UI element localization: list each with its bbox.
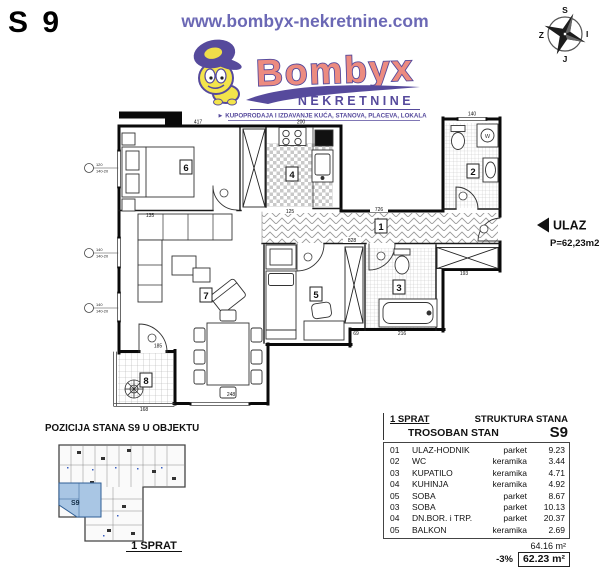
- armchair: [209, 278, 246, 314]
- svg-text:140-20: 140-20: [96, 169, 109, 174]
- room-area: 4.71: [527, 468, 565, 479]
- position-title: POZICIJA STANA S9 U OBJEKTU: [45, 423, 199, 434]
- net-area-value: 62.23 m²: [518, 552, 570, 567]
- brand-subtitle: NEKRETNINE: [298, 94, 414, 108]
- door-tag: [220, 189, 228, 197]
- table-row: 03 KUPATILO keramika 4.71: [384, 468, 569, 479]
- wall-block: [165, 112, 182, 126]
- room-name: WC: [412, 456, 475, 467]
- washer-label: W: [485, 134, 491, 140]
- closet-entry: [437, 248, 498, 269]
- dim-label: 125: [286, 209, 295, 215]
- compass-east: I: [586, 29, 588, 39]
- table-row: 05 SOBA parket 8.67: [384, 491, 569, 502]
- nightstand: [122, 199, 135, 211]
- dim-label: 828: [348, 238, 357, 244]
- svg-text:140: 140: [96, 247, 103, 252]
- window-tag: 140 140-20: [85, 247, 119, 259]
- table-subheader: TROSOBAN STAN S9: [383, 425, 570, 440]
- table-row: 01 ULAZ-HODNIK parket 9.23: [384, 445, 569, 456]
- door-tag: [377, 252, 385, 260]
- room-number: 03: [390, 468, 412, 479]
- table-row: 04 KUHINJA keramika 4.92: [384, 479, 569, 490]
- net-area-row: -3% 62.23 m²: [383, 551, 570, 567]
- entrance-arrow-icon: [537, 218, 549, 233]
- svg-text:4: 4: [289, 170, 295, 181]
- unit-code-label: S 9: [8, 6, 62, 39]
- coffee-table: [172, 256, 196, 275]
- room-area: 20.37: [527, 513, 565, 524]
- room-material: parket: [475, 491, 527, 502]
- dim-label: 140: [468, 112, 477, 118]
- apartment-structure-table: 1 SPRAT STRUKTURA STANA TROSOBAN STAN S9…: [383, 413, 570, 567]
- svg-text:8: 8: [143, 376, 148, 387]
- svg-text:1: 1: [378, 222, 384, 233]
- room-label-8: 8: [140, 373, 152, 387]
- room-name: KUHINJA: [412, 479, 475, 490]
- website-url[interactable]: www.bombyx-nekretnine.com: [180, 11, 428, 31]
- wall-block: [119, 112, 165, 119]
- room-area: 4.92: [527, 479, 565, 490]
- door-tag: [148, 334, 156, 342]
- room-number: 04: [390, 513, 412, 524]
- compass-south: J: [563, 54, 568, 64]
- closet-bedroom: [345, 247, 363, 323]
- room-label-3: 3: [393, 280, 405, 294]
- single-bed: [266, 271, 296, 339]
- room-rows: 01 ULAZ-HODNIK parket 9.23 02 WC keramik…: [383, 442, 570, 539]
- room-number: 03: [390, 502, 412, 513]
- room-name: ULAZ-HODNIK: [412, 445, 475, 456]
- nightstand: [122, 133, 135, 145]
- table-row: 02 WC keramika 3.44: [384, 456, 569, 467]
- flyer-page: S 9 www.bombyx-nekretnine.com Bombyx NEK…: [0, 0, 600, 573]
- room-name: SOBA: [412, 491, 475, 502]
- room-material: parket: [475, 445, 527, 456]
- mascot-caterpillar-icon: [191, 36, 243, 105]
- desk: [304, 321, 344, 340]
- gross-area-total: 64.16 m²: [383, 539, 570, 551]
- svg-text:140-20: 140-20: [96, 309, 109, 314]
- toilet: [451, 126, 465, 150]
- compass-rose-icon: S Z I J: [536, 5, 593, 64]
- room-material: keramika: [475, 468, 527, 479]
- door-tag: [459, 192, 467, 200]
- washing-machine: W: [477, 124, 498, 147]
- room-label-2: 2: [467, 164, 479, 178]
- stove: [279, 128, 306, 146]
- room-label-5: 5: [310, 287, 322, 301]
- dim-label: 726: [375, 207, 384, 213]
- svg-text:140: 140: [96, 302, 103, 307]
- window-tag: 140 140-20: [85, 302, 119, 314]
- compass-west: Z: [539, 30, 544, 40]
- table-unit-code: S9: [550, 426, 568, 439]
- room-material: parket: [475, 513, 527, 524]
- dim-label: 69: [353, 331, 359, 337]
- dim-label: 168: [140, 407, 149, 413]
- entrance-label: ULAZ: [553, 219, 587, 233]
- svg-text:140-20: 140-20: [96, 254, 109, 259]
- room-number: 04: [390, 479, 412, 490]
- room-area: 9.23: [527, 445, 565, 456]
- apartment-type-label: TROSOBAN STAN: [408, 427, 499, 439]
- dim-label: 417: [194, 120, 203, 126]
- table-row: 05 BALKON keramika 2.69: [384, 525, 569, 536]
- svg-text:5: 5: [313, 290, 319, 301]
- entrance-area: P=62,23m2: [550, 238, 599, 249]
- coffee-table: [193, 268, 210, 282]
- dim-label: 135: [146, 213, 155, 219]
- dim-label: 216: [398, 331, 407, 337]
- room-material: keramika: [475, 456, 527, 467]
- unit-s9-label: S9: [71, 500, 80, 507]
- brand-logo: Bombyx NEKRETNINE ► KUPOPRODAJA I IZDAVA…: [217, 47, 427, 120]
- dim-label: 200: [297, 120, 306, 126]
- room-material: keramika: [475, 525, 527, 536]
- table-header: 1 SPRAT STRUKTURA STANA: [383, 413, 570, 425]
- kitchen-sink: [312, 150, 333, 182]
- room-label-1: 1: [375, 219, 387, 233]
- svg-text:120: 120: [96, 162, 103, 167]
- table-row: 04 DN.BOR. i TRP. parket 20.37: [384, 513, 569, 524]
- room-number: 05: [390, 491, 412, 502]
- window-tag: 120 140-20: [85, 162, 119, 174]
- svg-text:2: 2: [470, 167, 475, 178]
- svg-text:7: 7: [203, 291, 208, 302]
- door-tag: [480, 225, 488, 233]
- floor-plan: W: [85, 112, 600, 414]
- room-label-6: 6: [180, 160, 192, 174]
- table-row: 03 SOBA parket 10.13: [384, 502, 569, 513]
- closet-wardrobe: [243, 129, 265, 207]
- room-area: 2.69: [527, 525, 565, 536]
- room-label-4: 4: [286, 167, 298, 181]
- door-tag: [304, 253, 312, 261]
- building-mini-plan: S9: [59, 445, 185, 541]
- compass-north: S: [562, 5, 568, 15]
- wc-sink: [483, 158, 498, 182]
- window-tags: 120 140-20 140 140-20 140 140-20: [85, 162, 119, 314]
- bathtub: [379, 299, 437, 327]
- dim-label: 193: [460, 271, 469, 277]
- room-number: 05: [390, 525, 412, 536]
- svg-text:6: 6: [183, 163, 188, 174]
- room-material: keramika: [475, 479, 527, 490]
- desk-chair: [311, 302, 332, 319]
- brand-tagline: ► KUPOPRODAJA I IZDAVANJE KUĆA, STANOVA,…: [217, 112, 427, 120]
- discount-label: -3%: [496, 554, 513, 565]
- room-number: 01: [390, 445, 412, 456]
- room-name: DN.BOR. i TRP.: [412, 513, 475, 524]
- room-area: 8.67: [527, 491, 565, 502]
- toilet: [394, 249, 410, 274]
- room-area: 3.44: [527, 456, 565, 467]
- dining-set: [194, 310, 262, 398]
- room-number: 02: [390, 456, 412, 467]
- room-area: 10.13: [527, 502, 565, 513]
- table-floor-label: 1 SPRAT: [390, 414, 429, 425]
- wardrobe-shelf: [266, 245, 296, 269]
- dim-label: 248: [227, 392, 236, 398]
- room-material: parket: [475, 502, 527, 513]
- room-label-7: 7: [200, 288, 212, 302]
- room-name: SOBA: [412, 502, 475, 513]
- mini-plan-floor-label: 1 SPRAT: [131, 540, 177, 552]
- room-name: BALKON: [412, 525, 475, 536]
- dim-label: 185: [154, 344, 163, 350]
- kitchen-appliance: [315, 130, 333, 146]
- entrance-annotation: ULAZ P=62,23m2: [537, 218, 599, 250]
- room-name: KUPATILO: [412, 468, 475, 479]
- svg-text:3: 3: [396, 283, 401, 294]
